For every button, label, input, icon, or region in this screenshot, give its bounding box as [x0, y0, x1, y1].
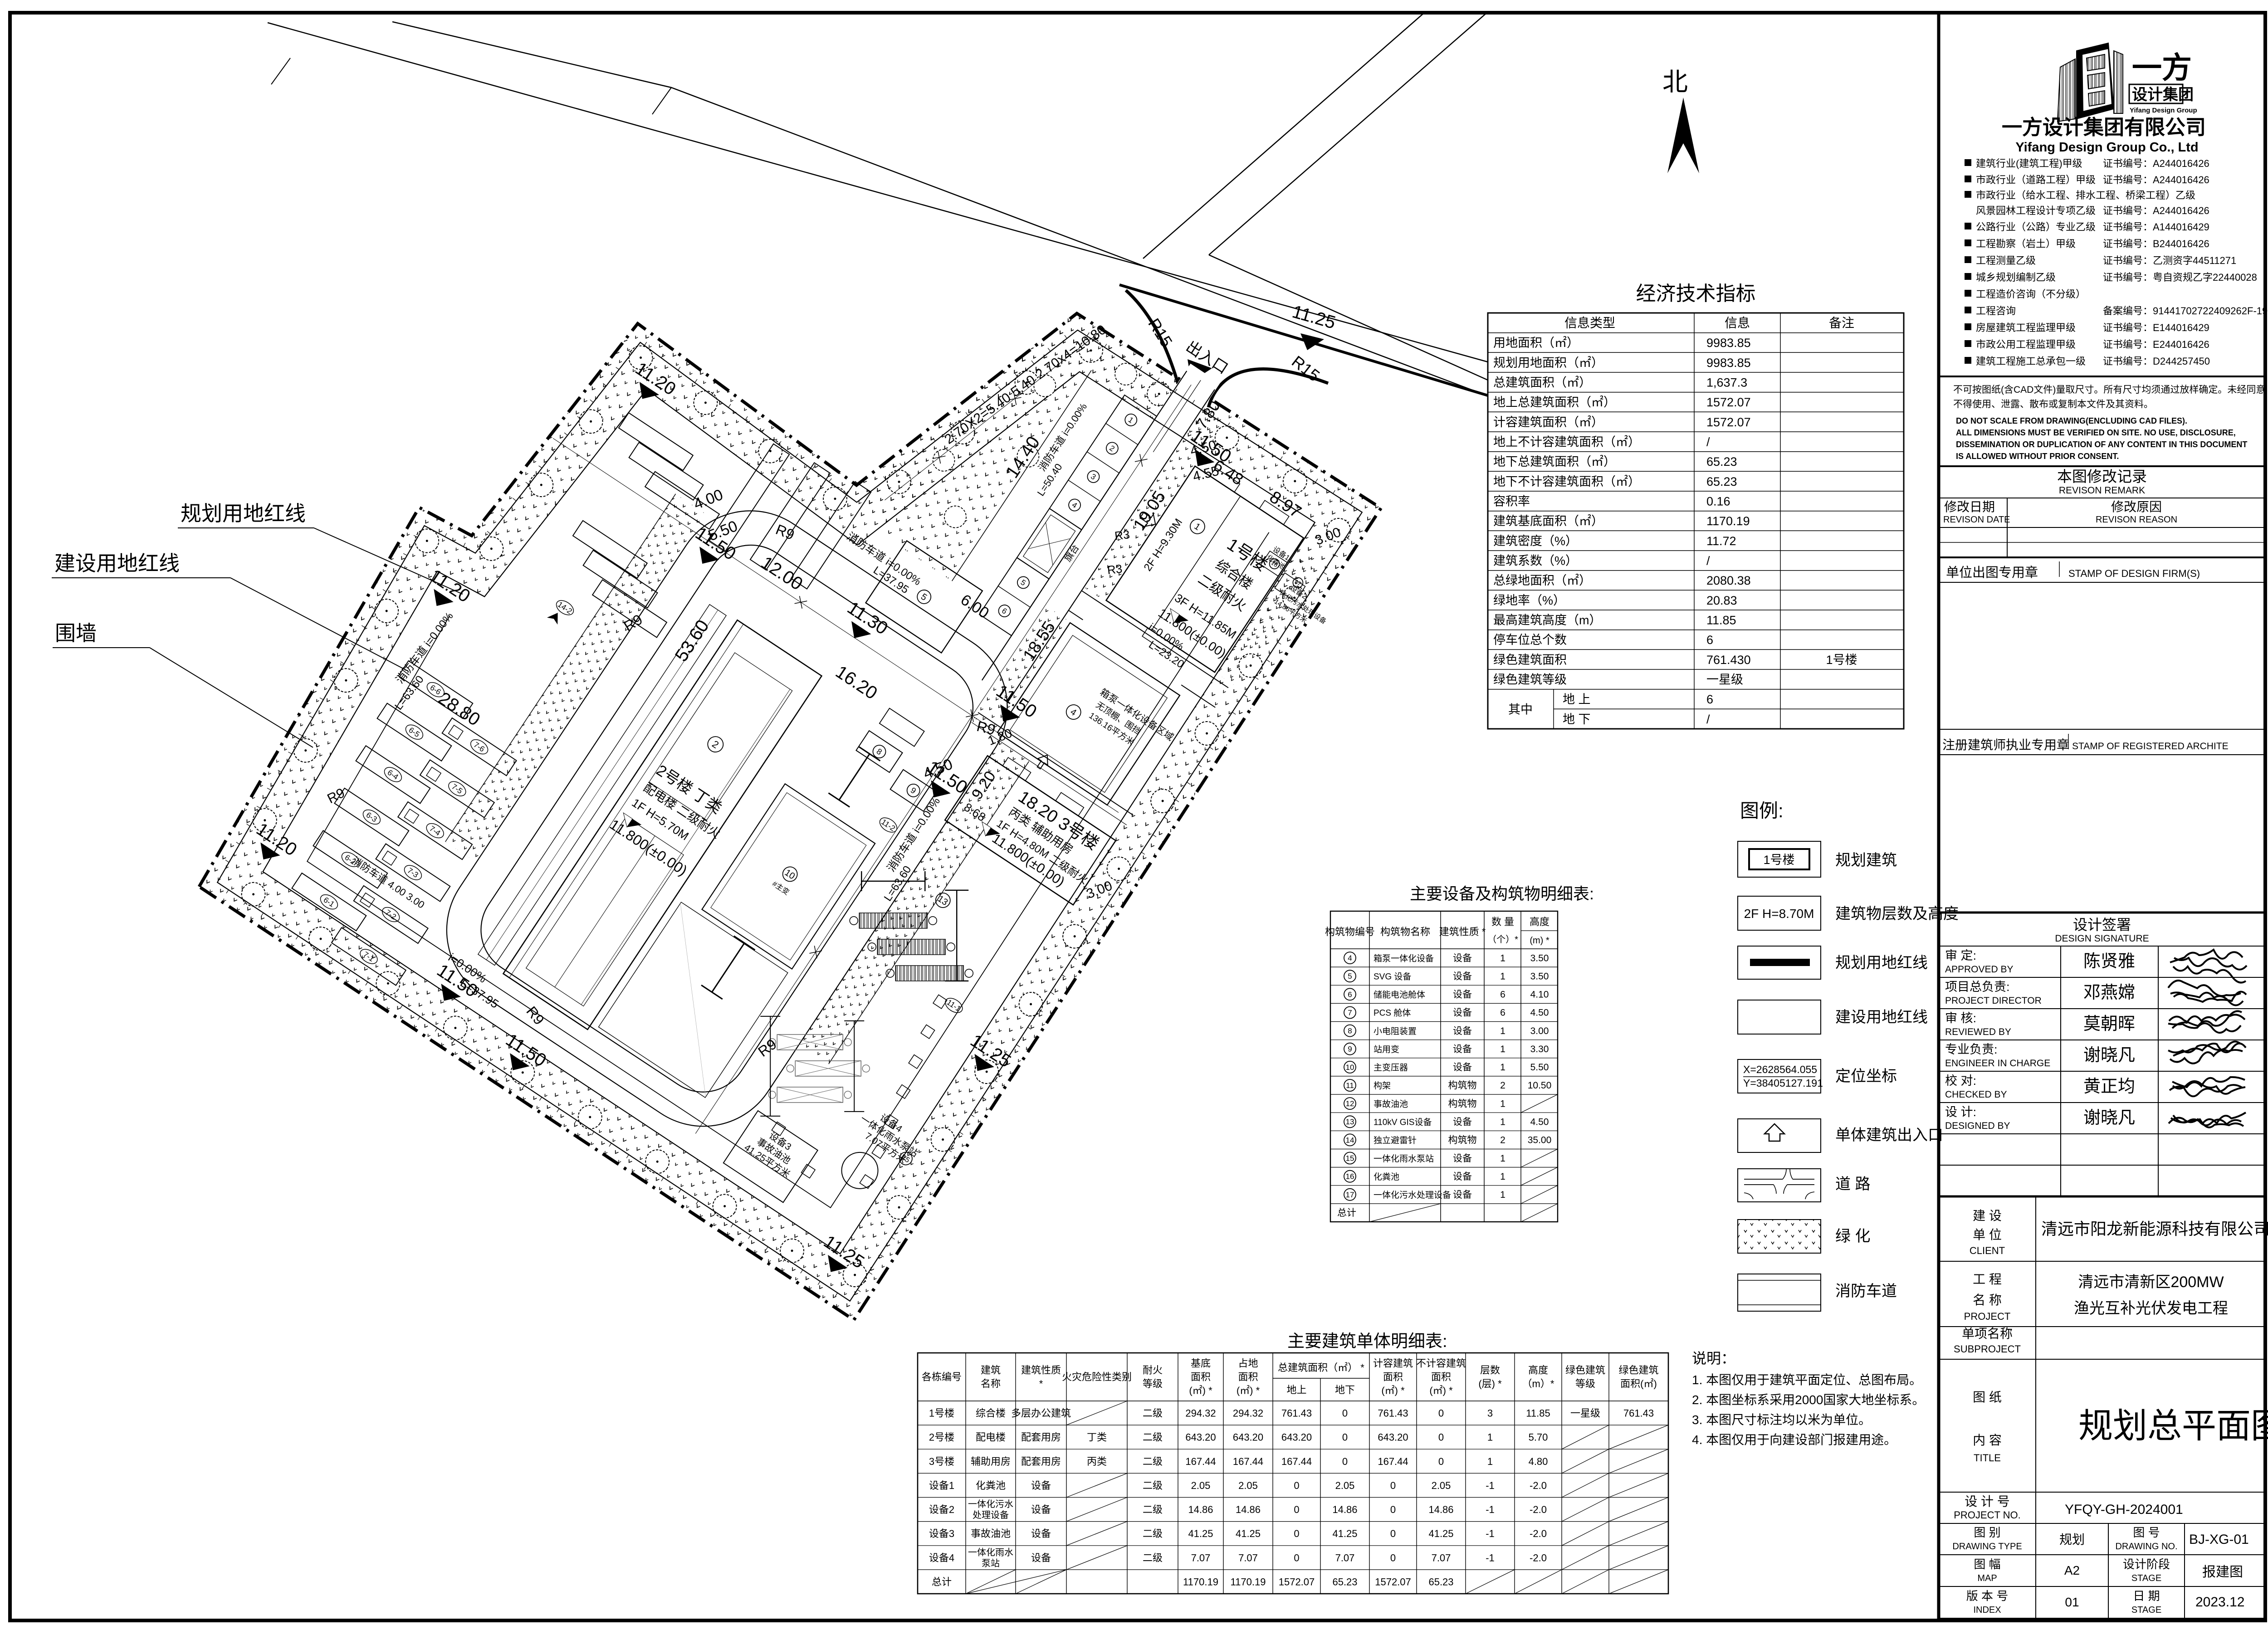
svg-text:PROJECT DIRECTOR: PROJECT DIRECTOR	[1945, 996, 2042, 1006]
svg-text:6: 6	[1500, 990, 1505, 1000]
svg-text:7-2: 7-2	[384, 908, 398, 921]
svg-text:7-5: 7-5	[450, 782, 464, 795]
svg-text:用地面积（㎡）: 用地面积（㎡）	[1493, 336, 1579, 350]
svg-text:地 上: 地 上	[1563, 693, 1591, 706]
svg-text:PCS 舱体: PCS 舱体	[1374, 1008, 1411, 1018]
svg-text:2F H=8.70M: 2F H=8.70M	[1744, 907, 1814, 921]
svg-text:4: 4	[1070, 500, 1079, 510]
svg-text:65.23: 65.23	[1332, 1576, 1357, 1587]
svg-text:0: 0	[1438, 1456, 1444, 1467]
svg-text:单项名称: 单项名称	[1962, 1327, 2013, 1341]
svg-text:16.20: 16.20	[832, 662, 881, 703]
svg-text:（个）*: （个）*	[1487, 934, 1518, 945]
svg-text:3.50: 3.50	[1530, 953, 1549, 963]
svg-text:-1: -1	[1486, 1504, 1495, 1515]
svg-text:6: 6	[1000, 606, 1008, 616]
svg-text:REVISON REMARK: REVISON REMARK	[2059, 485, 2145, 496]
svg-text:证书编号：乙测资字44511271: 证书编号：乙测资字44511271	[2103, 255, 2236, 266]
svg-text:证书编号：E244016426: 证书编号：E244016426	[2103, 339, 2209, 350]
svg-text:4.80: 4.80	[1529, 1456, 1548, 1467]
svg-text:R3: R3	[1106, 561, 1123, 577]
svg-text:9983.85: 9983.85	[1706, 356, 1751, 370]
svg-text:设计阶段: 设计阶段	[2123, 1557, 2170, 1571]
svg-text:化粪池: 化粪池	[1374, 1172, 1399, 1182]
svg-text:14.86: 14.86	[1332, 1504, 1357, 1515]
svg-text:IS ALLOWED WITHOUT PRIOR CONSE: IS ALLOWED WITHOUT PRIOR CONSENT.	[1956, 452, 2119, 461]
svg-text:一方: 一方	[2132, 52, 2192, 85]
svg-text:-1: -1	[1486, 1552, 1495, 1563]
svg-text:规划总平面图: 规划总平面图	[2078, 1407, 2268, 1445]
svg-text:6-3: 6-3	[365, 810, 379, 824]
svg-text:设备4: 设备4	[929, 1552, 954, 1563]
svg-text:Yifang Design Group: Yifang Design Group	[2130, 107, 2197, 114]
svg-text:图 幅: 图 幅	[1974, 1557, 2000, 1571]
svg-text:邓燕嫦: 邓燕嫦	[2083, 983, 2135, 1002]
svg-text:高度: 高度	[1530, 916, 1549, 927]
svg-text:41.25: 41.25	[1428, 1528, 1453, 1539]
svg-text:(㎡) *: (㎡) *	[1189, 1385, 1212, 1396]
svg-text:绿色建筑: 绿色建筑	[1565, 1365, 1605, 1376]
svg-text:17: 17	[1346, 1191, 1354, 1199]
svg-text:构筑物名称: 构筑物名称	[1380, 926, 1430, 937]
svg-text:主变压器: 主变压器	[1374, 1063, 1408, 1073]
svg-text:建设用地红线: 建设用地红线	[54, 551, 180, 575]
svg-text:-2.0: -2.0	[1530, 1552, 1547, 1563]
svg-text:建筑性质: 建筑性质	[1021, 1365, 1061, 1376]
svg-text:火灾危险性类别: 火灾危险性类别	[1062, 1371, 1132, 1383]
svg-text:1: 1	[1500, 1098, 1505, 1109]
svg-text:绿 化: 绿 化	[1835, 1228, 1870, 1245]
svg-text:规划建筑: 规划建筑	[1835, 852, 1897, 869]
svg-text:6: 6	[1500, 1008, 1505, 1018]
svg-text:0: 0	[1294, 1528, 1299, 1539]
svg-text:2: 2	[1108, 444, 1116, 453]
svg-text:APPROVED BY: APPROVED BY	[1945, 964, 2014, 975]
svg-text:构筑物: 构筑物	[1448, 1080, 1477, 1091]
svg-text:*: *	[1039, 1378, 1043, 1390]
svg-text:停车位总个数: 停车位总个数	[1493, 633, 1567, 647]
svg-text:建筑密度（%）: 建筑密度（%）	[1493, 534, 1578, 548]
svg-text:名 称: 名 称	[1973, 1293, 2002, 1307]
svg-text:项目总负责:: 项目总负责:	[1945, 980, 2010, 994]
svg-text:643.20: 643.20	[1281, 1432, 1312, 1443]
svg-text:设备: 设备	[1453, 1062, 1472, 1073]
svg-text:一体化污水处理设备: 一体化污水处理设备	[1374, 1190, 1451, 1200]
svg-text:不可按图纸(含CAD文件)量取尺寸。所有尺寸均须通过放样确定: 不可按图纸(含CAD文件)量取尺寸。所有尺寸均须通过放样确定。未经同意	[1953, 385, 2265, 395]
svg-text:4.10: 4.10	[1530, 990, 1549, 1000]
svg-text:ALL DIMENSIONS MUST BE VERIFIE: ALL DIMENSIONS MUST BE VERIFIED ON SITE.…	[1956, 428, 2236, 437]
svg-text:图 别: 图 别	[1974, 1526, 2000, 1539]
svg-text:1572.07: 1572.07	[1375, 1576, 1411, 1587]
svg-text:设 计:: 设 计:	[1945, 1105, 1976, 1119]
svg-text:YFQY-GH-2024001: YFQY-GH-2024001	[2065, 1502, 2183, 1517]
svg-text:35.00: 35.00	[1528, 1135, 1552, 1146]
svg-text:11.85: 11.85	[1526, 1408, 1550, 1419]
svg-text:3号楼: 3号楼	[929, 1456, 954, 1467]
svg-text:11: 11	[1346, 1081, 1354, 1090]
svg-text:6-6: 6-6	[429, 683, 443, 696]
svg-text:PROJECT: PROJECT	[1964, 1311, 2011, 1322]
svg-text:0.16: 0.16	[1706, 494, 1730, 508]
svg-text:1号楼: 1号楼	[929, 1408, 954, 1419]
svg-text:审 定:: 审 定:	[1945, 949, 1976, 962]
svg-text:备注: 备注	[1829, 316, 1854, 330]
svg-text:1170.19: 1170.19	[1231, 1576, 1266, 1587]
svg-text:证书编号：粤自资规乙字22440028: 证书编号：粤自资规乙字22440028	[2103, 272, 2257, 283]
svg-text:围墙: 围墙	[55, 621, 97, 645]
svg-text:STAGE: STAGE	[2131, 1605, 2161, 1615]
svg-text:化粪池: 化粪池	[976, 1480, 1006, 1491]
svg-text:绿色建筑等级: 绿色建筑等级	[1493, 673, 1567, 686]
svg-text:绿色建筑: 绿色建筑	[1618, 1365, 1658, 1376]
svg-text:一星级: 一星级	[1570, 1408, 1600, 1419]
svg-text:构筑物: 构筑物	[1448, 1098, 1477, 1109]
svg-text:规划: 规划	[2059, 1532, 2085, 1547]
svg-text:7.07: 7.07	[1432, 1552, 1451, 1563]
svg-text:1572.07: 1572.07	[1706, 395, 1751, 409]
svg-text:1: 1	[1500, 1171, 1505, 1182]
svg-text:11.85: 11.85	[1706, 613, 1736, 627]
svg-text:占地: 占地	[1238, 1358, 1258, 1369]
svg-text:事故油池: 事故油池	[1374, 1099, 1408, 1109]
svg-text:/: /	[1706, 713, 1710, 726]
svg-text:地下总建筑面积（㎡）: 地下总建筑面积（㎡）	[1493, 455, 1616, 469]
svg-text:总计: 总计	[1337, 1208, 1356, 1218]
svg-text:面积: 面积	[1383, 1371, 1403, 1383]
svg-text:1号楼: 1号楼	[1763, 853, 1794, 867]
svg-text:审 核:: 审 核:	[1945, 1011, 1976, 1025]
svg-text:1: 1	[1500, 1153, 1505, 1164]
svg-text:建设用地红线: 建设用地红线	[1835, 1009, 1928, 1026]
svg-text:0: 0	[1342, 1432, 1348, 1443]
svg-text:7-4: 7-4	[428, 824, 442, 837]
svg-text:REVIEWED BY: REVIEWED BY	[1945, 1027, 2011, 1037]
svg-text:12.00: 12.00	[758, 552, 807, 594]
svg-text:53.60: 53.60	[671, 616, 713, 665]
svg-text:167.44: 167.44	[1281, 1456, 1312, 1467]
svg-text:基底: 基底	[1191, 1358, 1211, 1369]
svg-text:643.20: 643.20	[1233, 1432, 1263, 1443]
svg-text:5: 5	[1348, 972, 1352, 981]
svg-text:设备: 设备	[1453, 1190, 1472, 1200]
svg-text:CLIENT: CLIENT	[1970, 1245, 2005, 1256]
svg-text:DO NOT SCALE FROM DRAWING(ENCL: DO NOT SCALE FROM DRAWING(ENCLUDING CAD …	[1956, 416, 2187, 425]
svg-text:莫朝晖: 莫朝晖	[2083, 1015, 2135, 1034]
svg-text:专业负责:: 专业负责:	[1945, 1043, 1998, 1056]
svg-text:证书编号：E144016429: 证书编号：E144016429	[2103, 322, 2209, 333]
svg-text:地上不计容建筑面积（㎡）: 地上不计容建筑面积（㎡）	[1493, 435, 1640, 449]
svg-text:STAMP OF REGISTERED ARCHITE: STAMP OF REGISTERED ARCHITE	[2072, 741, 2229, 752]
svg-text:1号楼: 1号楼	[1826, 653, 1857, 667]
svg-text:294.32: 294.32	[1233, 1408, 1263, 1419]
svg-text:/: /	[1706, 435, 1710, 449]
svg-text:一体化雨水泵站: 一体化雨水泵站	[1374, 1154, 1434, 1164]
svg-text:清远市清新区200MW: 清远市清新区200MW	[2078, 1274, 2224, 1291]
svg-text:0: 0	[1390, 1480, 1396, 1491]
svg-text:-1: -1	[1486, 1480, 1495, 1491]
svg-text:STAMP OF DESIGN FIRM(S): STAMP OF DESIGN FIRM(S)	[2068, 568, 2200, 579]
svg-text:证书编号：A244016426: 证书编号：A244016426	[2103, 158, 2209, 169]
svg-text:7.07: 7.07	[1335, 1552, 1355, 1563]
svg-text:14.86: 14.86	[1236, 1504, 1261, 1515]
svg-text:信息: 信息	[1725, 316, 1750, 330]
svg-text:校 对:: 校 对:	[1945, 1074, 1976, 1088]
svg-text:3.00: 3.00	[1530, 1026, 1549, 1036]
svg-text:REVISON REASON: REVISON REASON	[2096, 515, 2177, 525]
svg-text:4: 4	[1348, 954, 1352, 962]
svg-text:谢晓凡: 谢晓凡	[2083, 1108, 2135, 1127]
svg-text:PROJECT NO.: PROJECT NO.	[1954, 1509, 2021, 1521]
svg-text:7.07: 7.07	[1238, 1552, 1258, 1563]
svg-text:定位坐标: 定位坐标	[1835, 1068, 1897, 1085]
svg-text:市政行业（道路工程）甲级: 市政行业（道路工程）甲级	[1976, 174, 2096, 185]
svg-text:14.86: 14.86	[1188, 1504, 1213, 1515]
svg-text:(层) *: (层) *	[1478, 1378, 1502, 1390]
svg-text:构筑物编号: 构筑物编号	[1325, 926, 1375, 937]
svg-text:DESIGN SIGNATURE: DESIGN SIGNATURE	[2055, 933, 2149, 944]
svg-text:1. 本图仅用于建筑平面定位、总图布局。: 1. 本图仅用于建筑平面定位、总图布局。	[1692, 1373, 1922, 1387]
svg-text:11-2: 11-2	[880, 817, 897, 833]
svg-text:14-2: 14-2	[556, 600, 574, 616]
svg-text:报建图: 报建图	[2202, 1565, 2243, 1580]
svg-text:0: 0	[1390, 1504, 1396, 1515]
svg-text:65.23: 65.23	[1706, 475, 1737, 488]
svg-text:1: 1	[1193, 521, 1202, 532]
svg-text:二级: 二级	[1143, 1528, 1163, 1539]
svg-text:配套用房: 配套用房	[1021, 1456, 1061, 1467]
svg-text:65.23: 65.23	[1428, 1576, 1453, 1587]
svg-text:4.00: 4.00	[691, 486, 726, 513]
svg-text:设备: 设备	[1031, 1528, 1051, 1539]
svg-text:面积(㎡): 面积(㎡)	[1620, 1378, 1657, 1390]
svg-text:9983.85: 9983.85	[1706, 336, 1751, 350]
svg-text:X=2628564.055: X=2628564.055	[1743, 1064, 1817, 1075]
svg-text:20.83: 20.83	[1706, 594, 1737, 607]
svg-text:城乡规划编制乙级: 城乡规划编制乙级	[1976, 272, 2056, 283]
svg-text:日 期: 日 期	[2133, 1589, 2160, 1603]
svg-text:设备: 设备	[1453, 953, 1472, 963]
svg-text:名称: 名称	[981, 1378, 1001, 1390]
svg-text:R9: R9	[755, 1036, 779, 1060]
svg-text:761.43: 761.43	[1378, 1408, 1408, 1419]
svg-text:计容建筑: 计容建筑	[1373, 1358, 1413, 1369]
svg-text:建 设: 建 设	[1973, 1209, 2002, 1223]
svg-text:110kV GIS设备: 110kV GIS设备	[1374, 1117, 1432, 1127]
svg-text:清远市阳龙新能源科技有限公司: 清远市阳龙新能源科技有限公司	[2041, 1220, 2268, 1238]
svg-text:图 纸: 图 纸	[1973, 1390, 2002, 1404]
svg-text:一方设计集团有限公司: 一方设计集团有限公司	[2002, 116, 2206, 139]
svg-text:内 容: 内 容	[1973, 1433, 2002, 1447]
svg-text:0: 0	[1294, 1480, 1299, 1491]
svg-text:图 号: 图 号	[2133, 1526, 2160, 1539]
svg-text:A2: A2	[2064, 1563, 2080, 1577]
svg-text:设备: 设备	[1453, 971, 1472, 981]
svg-text:经济技术指标: 经济技术指标	[1636, 283, 1756, 305]
svg-text:一体化污水: 一体化污水	[968, 1499, 1013, 1509]
svg-text:证书编号：A244016426: 证书编号：A244016426	[2103, 205, 2209, 216]
svg-text:地下不计容建筑面积（㎡）: 地下不计容建筑面积（㎡）	[1493, 475, 1640, 488]
svg-text:/: /	[1706, 554, 1710, 567]
svg-text:建筑基底面积（㎡）: 建筑基底面积（㎡）	[1493, 514, 1603, 528]
svg-text:2. 本图坐标系采用2000国家大地坐标系。: 2. 本图坐标系采用2000国家大地坐标系。	[1692, 1393, 1925, 1407]
svg-text:市政公用工程监理甲级: 市政公用工程监理甲级	[1976, 339, 2076, 350]
svg-text:7.07: 7.07	[1191, 1552, 1211, 1563]
svg-text:5: 5	[1019, 578, 1027, 587]
svg-text:2.05: 2.05	[1238, 1480, 1258, 1491]
svg-text:INDEX: INDEX	[1973, 1605, 2001, 1615]
svg-text:-1: -1	[1486, 1528, 1495, 1539]
svg-text:1: 1	[1127, 415, 1135, 425]
svg-text:设备3: 设备3	[929, 1528, 954, 1539]
svg-text:STAGE: STAGE	[2131, 1573, 2161, 1583]
svg-text:2.05: 2.05	[1191, 1480, 1211, 1491]
svg-text:1: 1	[1487, 1456, 1493, 1467]
svg-text:1: 1	[1500, 1026, 1505, 1036]
svg-text:7: 7	[1348, 1008, 1352, 1017]
svg-text:1572.07: 1572.07	[1279, 1576, 1315, 1587]
svg-text:地上: 地上	[1286, 1384, 1306, 1396]
svg-text:7-6: 7-6	[472, 740, 486, 753]
svg-text:12: 12	[1346, 1099, 1354, 1108]
svg-text:0: 0	[1438, 1408, 1444, 1419]
svg-text:0: 0	[1294, 1504, 1299, 1515]
svg-text:设备2: 设备2	[929, 1504, 954, 1515]
svg-text:16: 16	[1346, 1172, 1354, 1181]
svg-text:0: 0	[1438, 1432, 1444, 1443]
svg-text:设备: 设备	[1031, 1552, 1051, 1563]
svg-text:配电楼: 配电楼	[976, 1432, 1006, 1443]
svg-text:规划用地红线: 规划用地红线	[181, 502, 306, 525]
svg-text:版 本 号: 版 本 号	[1966, 1589, 2008, 1603]
svg-text:1: 1	[1500, 971, 1505, 981]
svg-text:11.25: 11.25	[1290, 302, 1338, 333]
svg-text:辅助用房: 辅助用房	[971, 1456, 1011, 1467]
svg-text:2号楼: 2号楼	[929, 1432, 954, 1443]
svg-text:箱泵一体化设备: 箱泵一体化设备	[1374, 953, 1434, 963]
svg-text:不得使用、泄露、散布或复制本文件及其资料。: 不得使用、泄露、散布或复制本文件及其资料。	[1953, 399, 2153, 410]
svg-text:2080.38: 2080.38	[1706, 574, 1751, 587]
svg-text:黄正均: 黄正均	[2083, 1077, 2135, 1096]
svg-text:#主变: #主变	[771, 879, 791, 897]
svg-text:设备: 设备	[1453, 1153, 1472, 1164]
svg-text:-2.0: -2.0	[1530, 1504, 1547, 1515]
svg-text:建筑工程施工总承包一级: 建筑工程施工总承包一级	[1976, 356, 2086, 367]
svg-text:167.44: 167.44	[1233, 1456, 1263, 1467]
svg-text:0: 0	[1294, 1552, 1299, 1563]
svg-text:5.70: 5.70	[1529, 1432, 1548, 1443]
svg-text:8: 8	[1348, 1027, 1352, 1035]
svg-text:TITLE: TITLE	[1974, 1452, 2001, 1464]
svg-text:DISSEMINATION OR DUPLICATION: DISSEMINATION OR DUPLICATION OF ANY CONT…	[1956, 440, 2247, 449]
svg-text:二级: 二级	[1143, 1552, 1163, 1563]
svg-text:工程测量乙级: 工程测量乙级	[1976, 255, 2036, 266]
svg-text:证书编号：A144016429: 证书编号：A144016429	[2103, 221, 2209, 233]
svg-text:面积: 面积	[1431, 1371, 1451, 1383]
svg-text:167.44: 167.44	[1185, 1456, 1216, 1467]
svg-text:规划用地面积（㎡）: 规划用地面积（㎡）	[1493, 356, 1603, 370]
svg-text:小电阻装置: 小电阻装置	[1374, 1026, 1417, 1036]
svg-text:设备: 设备	[1453, 1117, 1472, 1127]
svg-text:地 下: 地 下	[1563, 713, 1591, 726]
svg-text:构架: 构架	[1374, 1081, 1391, 1091]
svg-text:REVISON DATE: REVISON DATE	[1943, 515, 2010, 525]
svg-text:0: 0	[1390, 1552, 1396, 1563]
svg-text:工程造价咨询（不分级）: 工程造价咨询（不分级）	[1976, 288, 2086, 300]
svg-text:建筑系数（%）: 建筑系数（%）	[1493, 554, 1578, 567]
svg-text:证书编号：D244257450: 证书编号：D244257450	[2103, 356, 2210, 367]
svg-text:6-1: 6-1	[322, 895, 336, 908]
svg-text:（m）*: （m）*	[1522, 1378, 1554, 1390]
svg-text:事故油池: 事故油池	[971, 1528, 1011, 1539]
svg-text:DRAWING NO.: DRAWING NO.	[2115, 1542, 2177, 1552]
svg-text:SUBPROJECT: SUBPROJECT	[1954, 1343, 2021, 1355]
svg-text:6: 6	[1348, 990, 1352, 999]
svg-text:643.20: 643.20	[1378, 1432, 1408, 1443]
svg-text:泵站: 泵站	[982, 1558, 1000, 1568]
svg-text:-2.0: -2.0	[1530, 1480, 1547, 1491]
svg-text:01: 01	[2065, 1595, 2079, 1609]
svg-text:设备: 设备	[1453, 1171, 1472, 1182]
svg-text:6.00: 6.00	[958, 591, 992, 622]
svg-text:2: 2	[710, 738, 721, 751]
svg-text:3: 3	[1487, 1408, 1493, 1419]
svg-text:65.23: 65.23	[1706, 455, 1737, 469]
svg-text:2.05: 2.05	[1335, 1480, 1355, 1491]
svg-text:总建筑面积（㎡）: 总建筑面积（㎡）	[1493, 376, 1591, 389]
svg-text:最高建筑高度（m）: 最高建筑高度（m）	[1493, 613, 1602, 627]
svg-text:主要建筑单体明细表:: 主要建筑单体明细表:	[1287, 1332, 1447, 1351]
svg-text:ENGINEER IN CHARGE: ENGINEER IN CHARGE	[1945, 1058, 2050, 1069]
svg-text:道 路: 道 路	[1835, 1176, 1870, 1193]
svg-text:建筑性质 *: 建筑性质 *	[1439, 926, 1486, 937]
svg-text:5: 5	[919, 592, 929, 603]
svg-text:4.50: 4.50	[1530, 1008, 1549, 1018]
svg-text:11.72: 11.72	[1706, 534, 1736, 548]
svg-text:(㎡) *: (㎡) *	[1381, 1385, 1405, 1396]
svg-text:总计: 总计	[932, 1576, 952, 1587]
svg-text:1: 1	[1500, 1062, 1505, 1073]
svg-text:6-5: 6-5	[407, 726, 421, 739]
svg-text:修改原因: 修改原因	[2111, 500, 2162, 514]
svg-text:证书编号：A244016426: 证书编号：A244016426	[2103, 174, 2209, 185]
svg-text:(㎡) *: (㎡) *	[1237, 1385, 1260, 1396]
svg-text:2: 2	[1500, 1080, 1505, 1091]
svg-text:9: 9	[1348, 1045, 1352, 1054]
svg-text:高度: 高度	[1528, 1365, 1548, 1376]
svg-text:设备: 设备	[1453, 1008, 1472, 1018]
svg-text:Y=38405127.191: Y=38405127.191	[1743, 1077, 1823, 1089]
svg-text:BJ-XG-01: BJ-XG-01	[2189, 1532, 2249, 1547]
svg-text:工程勘察（岩土）甲级: 工程勘察（岩土）甲级	[1976, 238, 2076, 249]
svg-text:耐火: 耐火	[1143, 1365, 1163, 1376]
svg-text:5.50: 5.50	[1530, 1062, 1549, 1073]
svg-text:11-1: 11-1	[945, 998, 963, 1013]
svg-text:建筑物层数及高度: 建筑物层数及高度	[1835, 905, 1959, 922]
svg-text:41.25: 41.25	[1236, 1528, 1261, 1539]
svg-text:设计集团: 设计集团	[2132, 86, 2194, 103]
svg-text:7-3: 7-3	[406, 866, 420, 879]
svg-text:备案编号：91441702722409262F-19: 备案编号：91441702722409262F-19	[2103, 305, 2268, 317]
svg-text:6: 6	[1706, 693, 1713, 706]
svg-text:6-4: 6-4	[386, 768, 400, 781]
svg-text:陈贤雅: 陈贤雅	[2083, 952, 2135, 971]
svg-text:计容建筑面积（㎡）: 计容建筑面积（㎡）	[1493, 415, 1603, 429]
svg-text:综合楼: 综合楼	[976, 1408, 1006, 1419]
svg-text:说明：: 说明：	[1692, 1350, 1735, 1366]
svg-text:MAP: MAP	[1977, 1573, 1997, 1583]
svg-text:14: 14	[1346, 1136, 1354, 1144]
svg-text:41.25: 41.25	[1332, 1528, 1357, 1539]
